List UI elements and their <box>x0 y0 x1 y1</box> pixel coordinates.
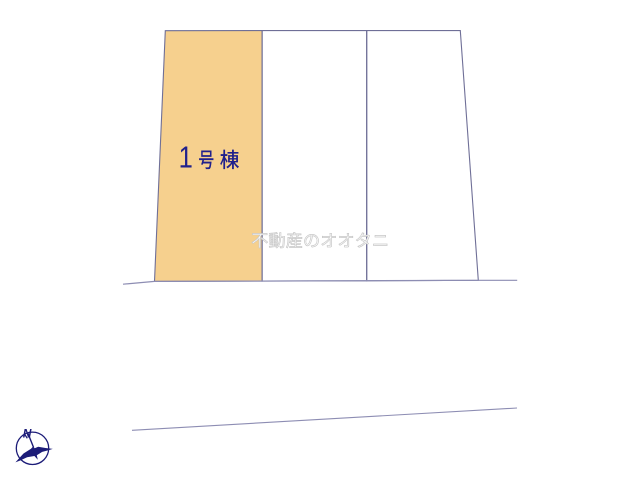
svg-text:N: N <box>23 426 32 440</box>
svg-text:1: 1 <box>179 140 193 175</box>
